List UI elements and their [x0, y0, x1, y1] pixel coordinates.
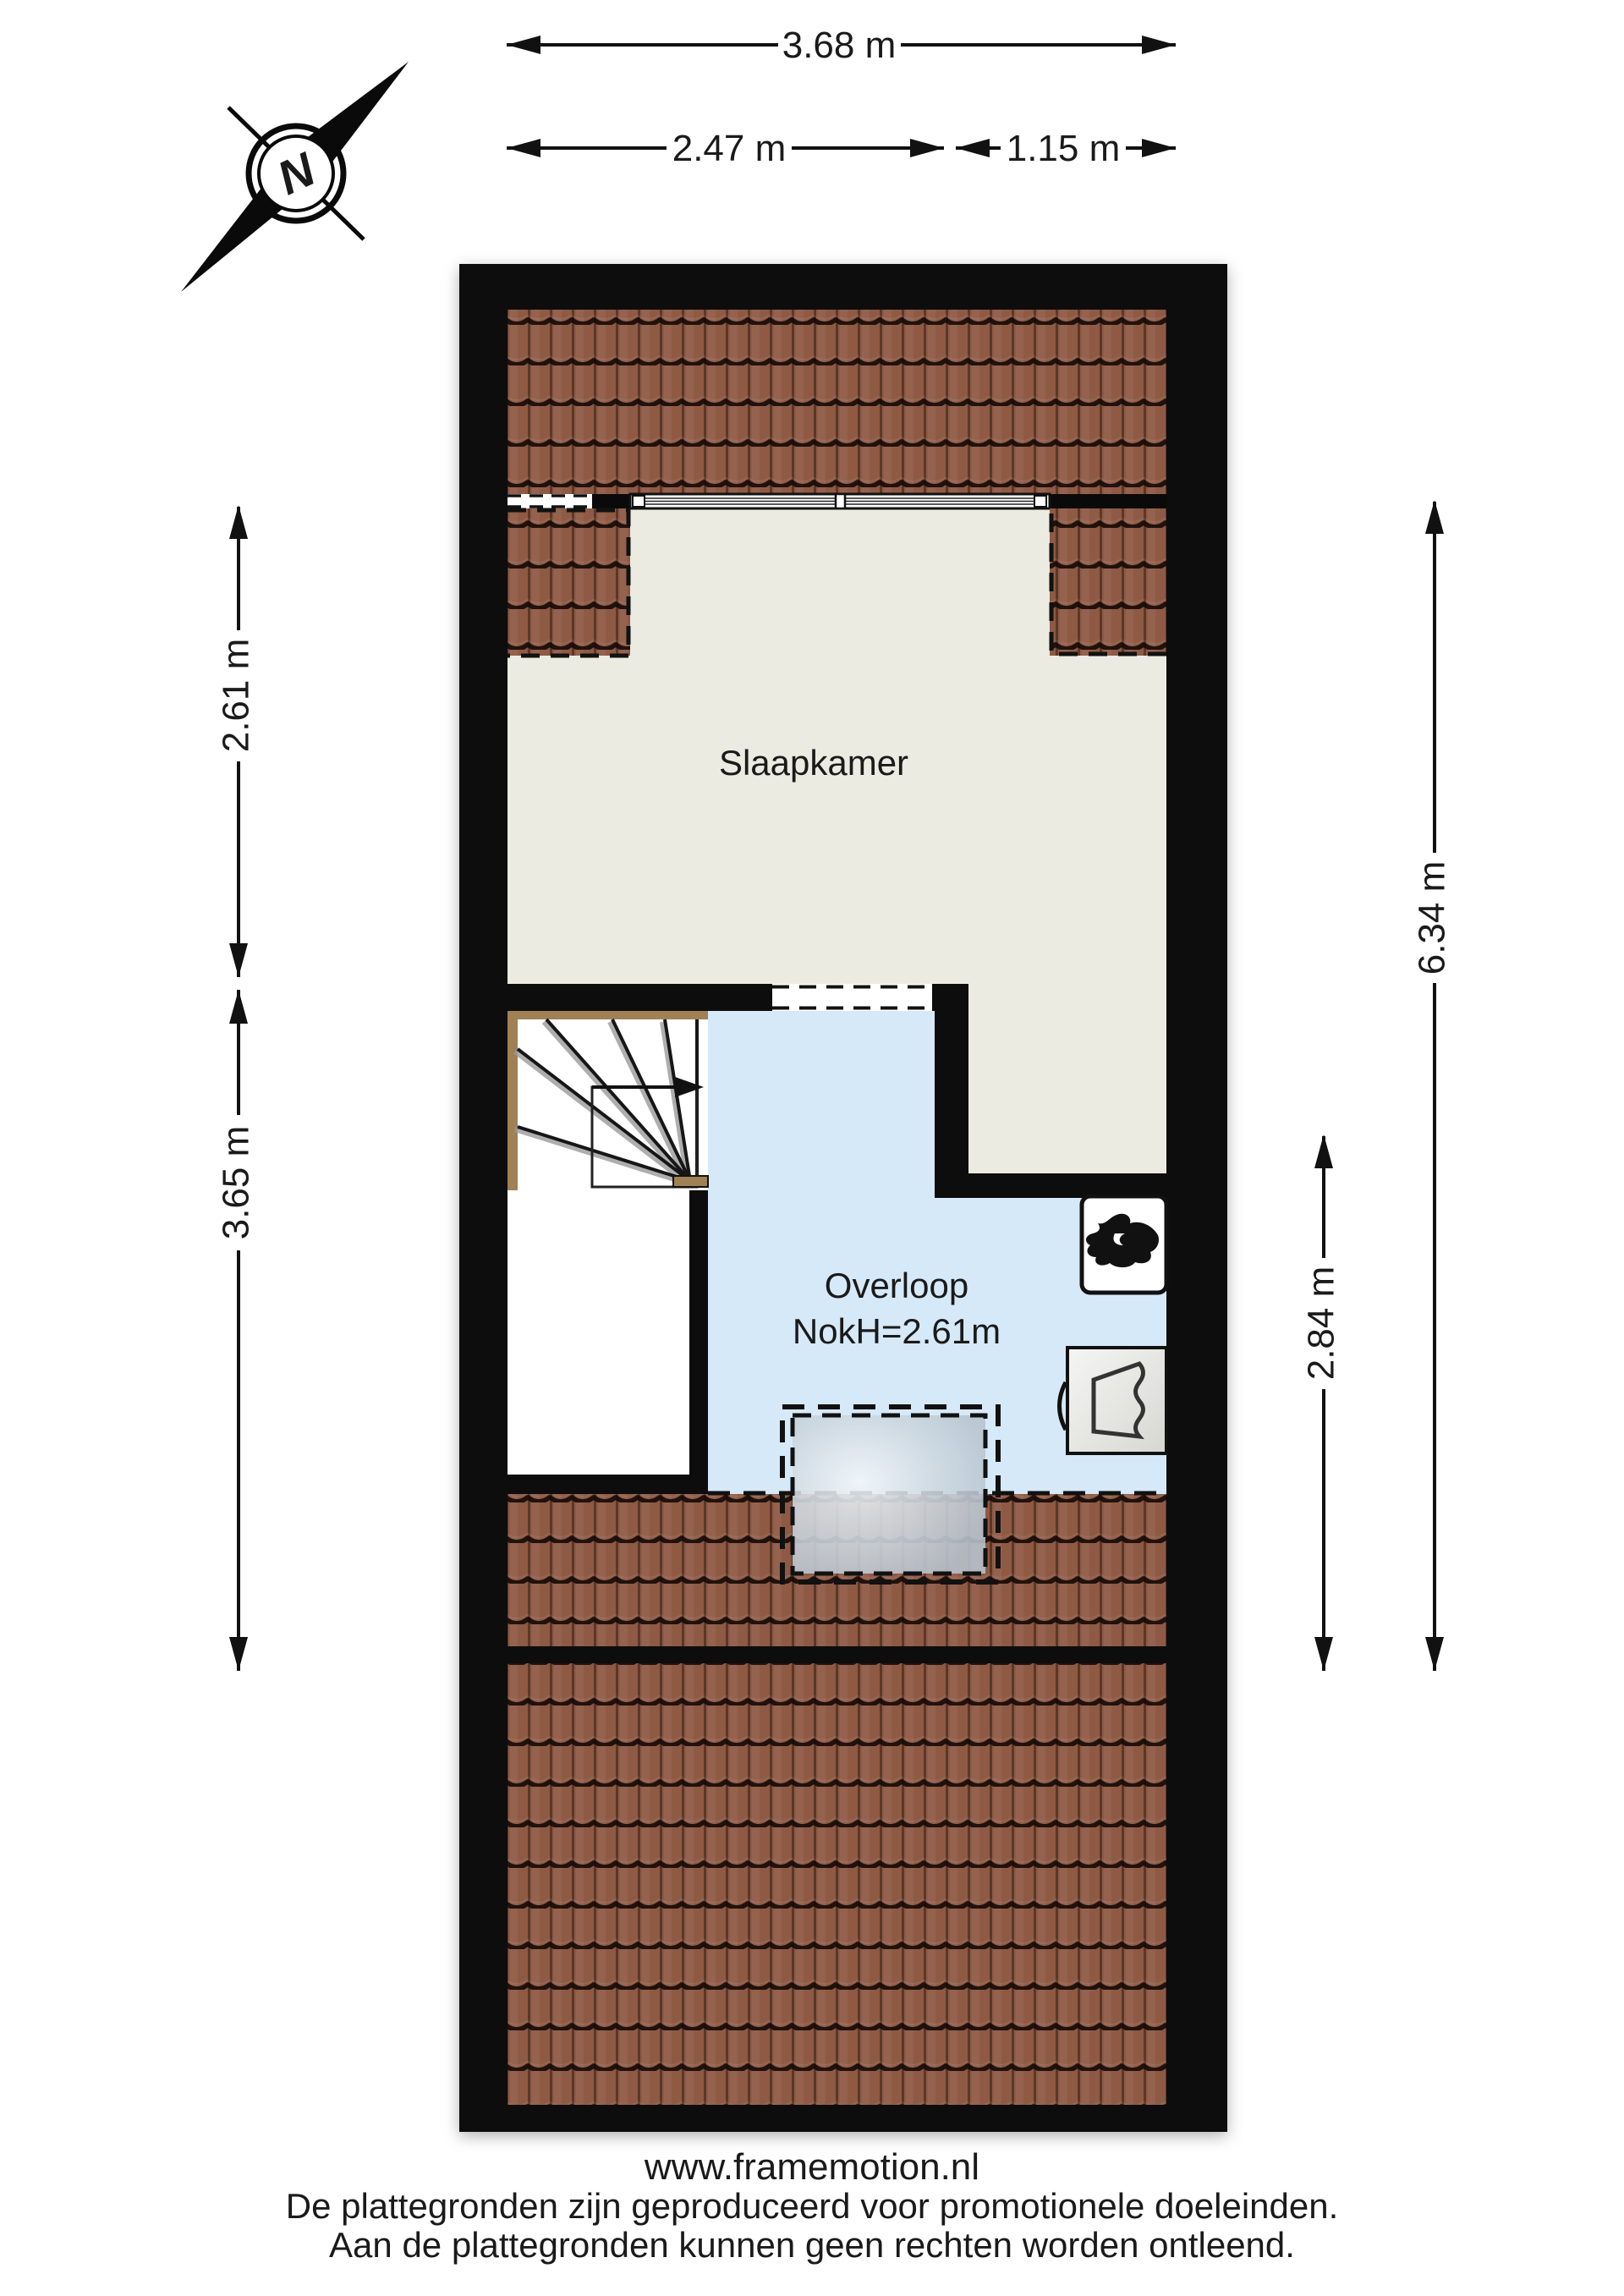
dimension-label: 3.65 m [216, 1126, 257, 1240]
floor-plan: Slaapkamer Overloop NokH=2.61m 3.68 m 2.… [0, 0, 1624, 2296]
window-center-post [836, 494, 845, 508]
room-label-slaapkamer: Slaapkamer [719, 743, 908, 783]
stairs [507, 1011, 708, 1190]
dimension-left-upper: 2.61 m [216, 505, 257, 977]
dimension-top-left: 2.47 m [507, 128, 944, 169]
dimension-label: 3.68 m [782, 25, 897, 66]
roof-section-bottom [507, 1663, 1166, 2105]
heater-unit [1082, 1196, 1166, 1293]
skylight [782, 1407, 998, 1582]
dimension-label: 2.47 m [672, 128, 787, 169]
room-label-overloop: Overloop [825, 1266, 968, 1305]
disclaimer-line-2: Aan de plattegronden kunnen geen rechten… [329, 2225, 1295, 2265]
dimension-top-right: 1.15 m [956, 128, 1176, 169]
roof-section-top [507, 310, 1166, 494]
window-right-post [1034, 496, 1046, 507]
wall-stub-right [1050, 494, 1166, 508]
dimension-left-lower: 3.65 m [216, 990, 257, 1671]
dimension-label: 2.61 m [216, 639, 257, 753]
floor-plan-page: Slaapkamer Overloop NokH=2.61m 3.68 m 2.… [0, 0, 1624, 2296]
dimension-label: 2.84 m [1301, 1266, 1342, 1381]
dimension-right-overloop: 2.84 m [1301, 1134, 1342, 1671]
stair-wood-left [507, 1011, 518, 1190]
website-text: www.framemotion.nl [644, 2146, 979, 2188]
dimension-right-total: 6.34 m [1412, 500, 1453, 1671]
roof-slope-left [507, 508, 630, 656]
dimension-top-total: 3.68 m [507, 25, 1176, 66]
stair-wood-top [507, 1011, 708, 1019]
window-left-post [633, 496, 645, 507]
wall-stub-left [592, 494, 630, 508]
roof-slope-right [1050, 508, 1166, 656]
dimension-label: 6.34 m [1412, 861, 1453, 975]
compass-rose: N [181, 62, 409, 292]
void-under-stairs [507, 1190, 689, 1475]
stair-newel [673, 1176, 708, 1187]
door-opening [772, 984, 932, 1011]
room-label-overloop-ridge-height: NokH=2.61m [793, 1311, 1001, 1351]
dimension-label: 1.15 m [1007, 128, 1121, 169]
ventilation-unit [1060, 1348, 1167, 1453]
disclaimer-line-1: De plattegronden zijn geproduceerd voor … [286, 2186, 1339, 2226]
dormer-window-row [507, 494, 1166, 508]
dormer-window [630, 494, 1050, 508]
